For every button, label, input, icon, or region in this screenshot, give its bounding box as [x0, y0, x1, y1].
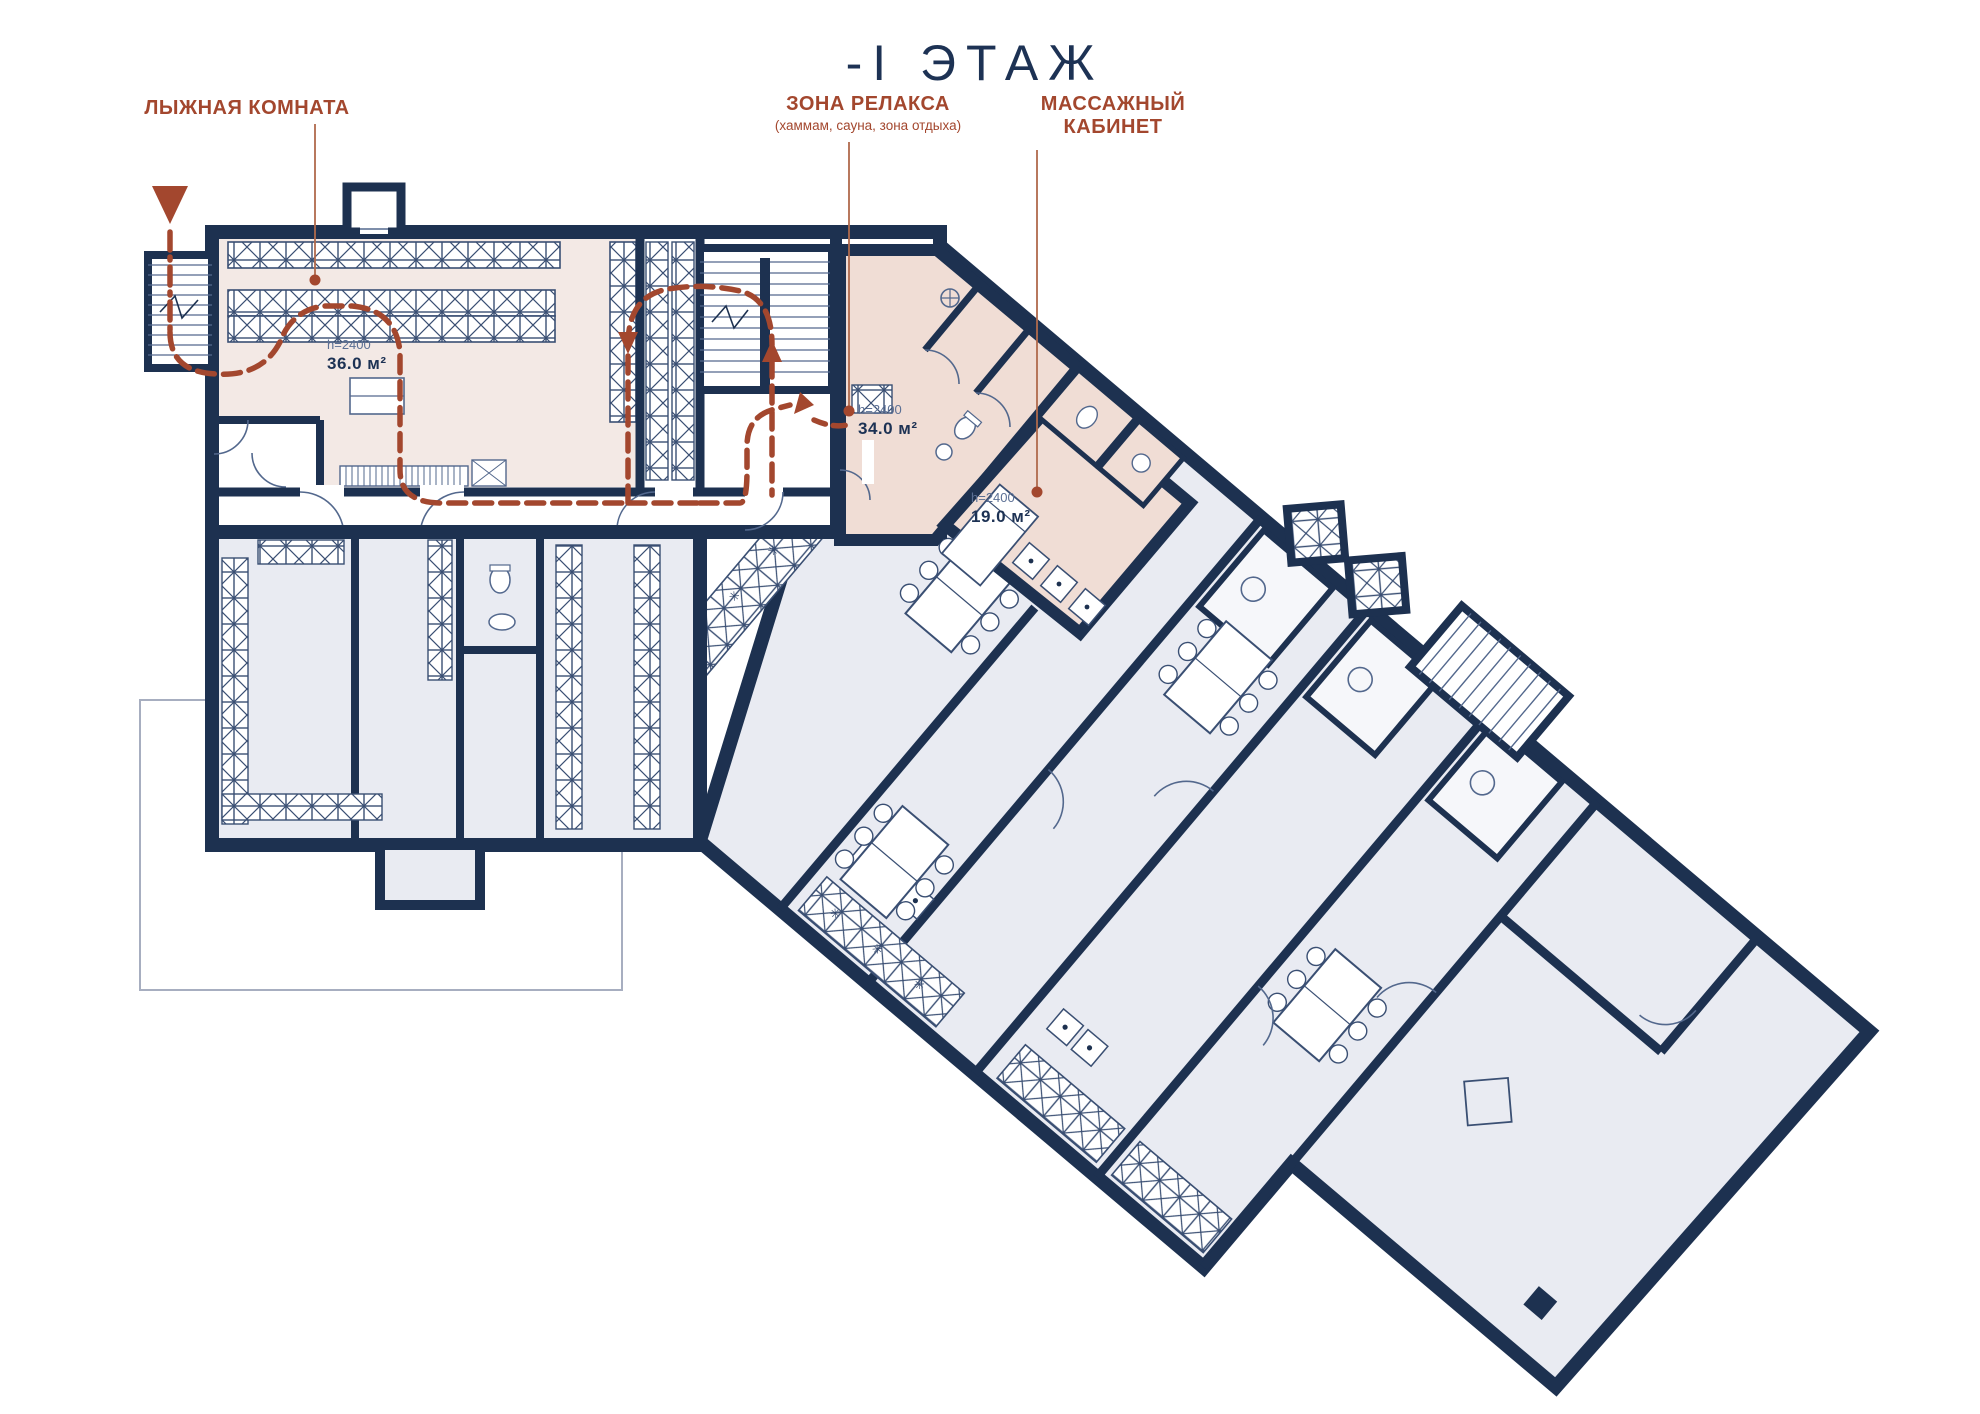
- ski-height-note: h=2400: [327, 337, 371, 352]
- block-rack: [258, 540, 344, 564]
- massage-leader-dot: [1032, 487, 1043, 498]
- block-rack: [222, 794, 382, 820]
- label-massage-line2: КАБИНЕТ: [1064, 116, 1163, 138]
- ski-leader-dot: [310, 275, 321, 286]
- ski-room: [214, 239, 640, 487]
- floorplan-drawing: ✳ ✳ ✳ ✳ ✳ ✳ ✳: [0, 0, 1980, 1414]
- massage-height-note: h=2400: [971, 490, 1015, 505]
- block-rack: [556, 545, 582, 829]
- ski-rack: [228, 242, 560, 268]
- label-ski-room: ЛЫЖНАЯ КОМНАТА: [144, 97, 349, 119]
- entry-arrow-icon: [152, 186, 188, 224]
- sink-icon: [489, 614, 515, 630]
- page-title: -I ЭТАЖ: [846, 35, 1105, 91]
- relax-leader-dot: [844, 406, 855, 417]
- shower-icon: [941, 289, 959, 307]
- massage-area: 19.0 м²: [971, 507, 1031, 526]
- storage-rack: [672, 242, 694, 480]
- sink-icon: [936, 444, 952, 460]
- relax-height-note: h=2400: [858, 402, 902, 417]
- floorplan-page: ✳ ✳ ✳ ✳ ✳ ✳ ✳: [0, 0, 1980, 1414]
- storage-rack: [646, 242, 668, 480]
- elevator-shaft: [347, 187, 401, 234]
- label-relax-zone: ЗОНА РЕЛАКСА: [786, 93, 950, 115]
- block-rack: [634, 545, 660, 829]
- ski-area: 36.0 м²: [327, 354, 387, 373]
- block-bump: [380, 845, 480, 905]
- block-rack: [428, 540, 452, 680]
- label-massage-line1: МАССАЖНЫЙ: [1041, 91, 1185, 115]
- west-exterior-stair: [148, 255, 212, 368]
- label-relax-subtitle: (хаммам, сауна, зона отдыха): [775, 118, 961, 133]
- relax-door-gap: [862, 440, 874, 484]
- ski-vestibule: [214, 420, 320, 487]
- ski-rack: [228, 290, 555, 316]
- block-rack: [222, 558, 248, 824]
- lower-left-block: [212, 532, 700, 905]
- relax-area: 34.0 м²: [858, 419, 918, 438]
- ski-rack: [228, 316, 555, 342]
